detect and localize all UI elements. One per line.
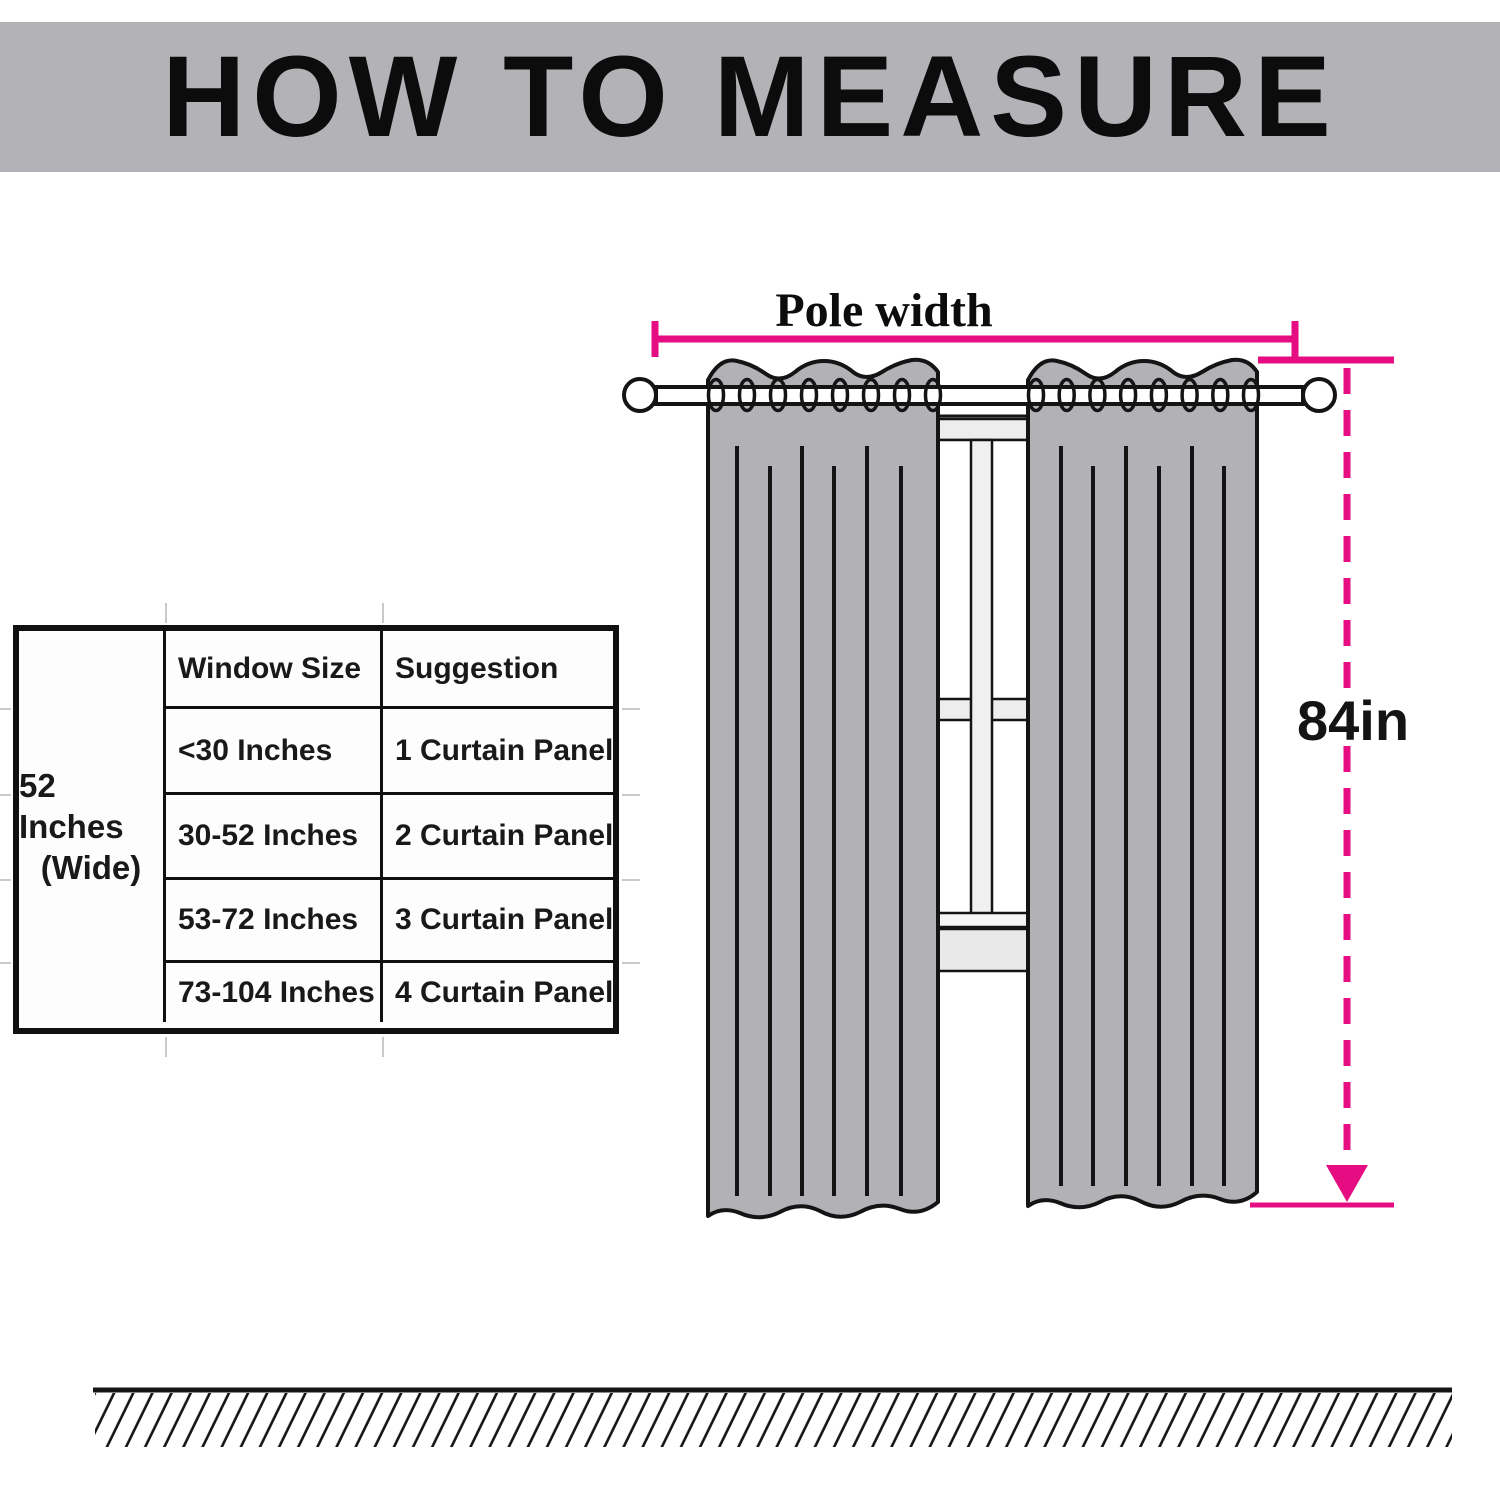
table-row-window-size: 73-104 Inches — [166, 963, 383, 1022]
how-to-measure-infographic: HOW TO MEASURE — [0, 0, 1500, 1500]
window-head-rail — [938, 419, 1028, 440]
curtain-panel-left — [708, 360, 938, 1218]
window-center-mullion — [971, 440, 992, 915]
floor-hatching — [95, 1393, 1452, 1447]
table-row-window-size: 53-72 Inches — [166, 880, 383, 963]
window-bottom-rail — [938, 913, 1028, 927]
curtain-length-measurement — [1250, 360, 1394, 1205]
width-label-line1: 52 Inches — [19, 765, 163, 848]
width-label-line2: (Wide) — [41, 847, 142, 888]
curtain-panel-right — [1028, 360, 1257, 1208]
measurement-arrowhead — [1326, 1165, 1368, 1202]
table-row-window-size: <30 Inches — [166, 709, 383, 795]
size-suggestion-table: 52 Inches (Wide) Window Size Suggestion … — [13, 625, 619, 1034]
table-row-window-size: 30-52 Inches — [166, 795, 383, 880]
pole-width-label: Pole width — [775, 284, 992, 337]
table-row-suggestion: 1 Curtain Panel — [383, 709, 613, 795]
pole-finial-left — [624, 379, 656, 411]
floor — [93, 1390, 1452, 1447]
pole-finial-right — [1303, 379, 1335, 411]
window — [933, 416, 1034, 971]
table-row-suggestion: 4 Curtain Panel — [383, 963, 613, 1022]
curtain-length-label: 84in — [1297, 689, 1409, 752]
window-sill — [933, 929, 1034, 971]
table-row-suggestion: 2 Curtain Panel — [383, 795, 613, 880]
col-header-suggestion: Suggestion — [383, 631, 613, 709]
table-row-suggestion: 3 Curtain Panel — [383, 880, 613, 963]
col-header-window-size: Window Size — [166, 631, 383, 709]
table-width-cell: 52 Inches (Wide) — [19, 631, 166, 1022]
